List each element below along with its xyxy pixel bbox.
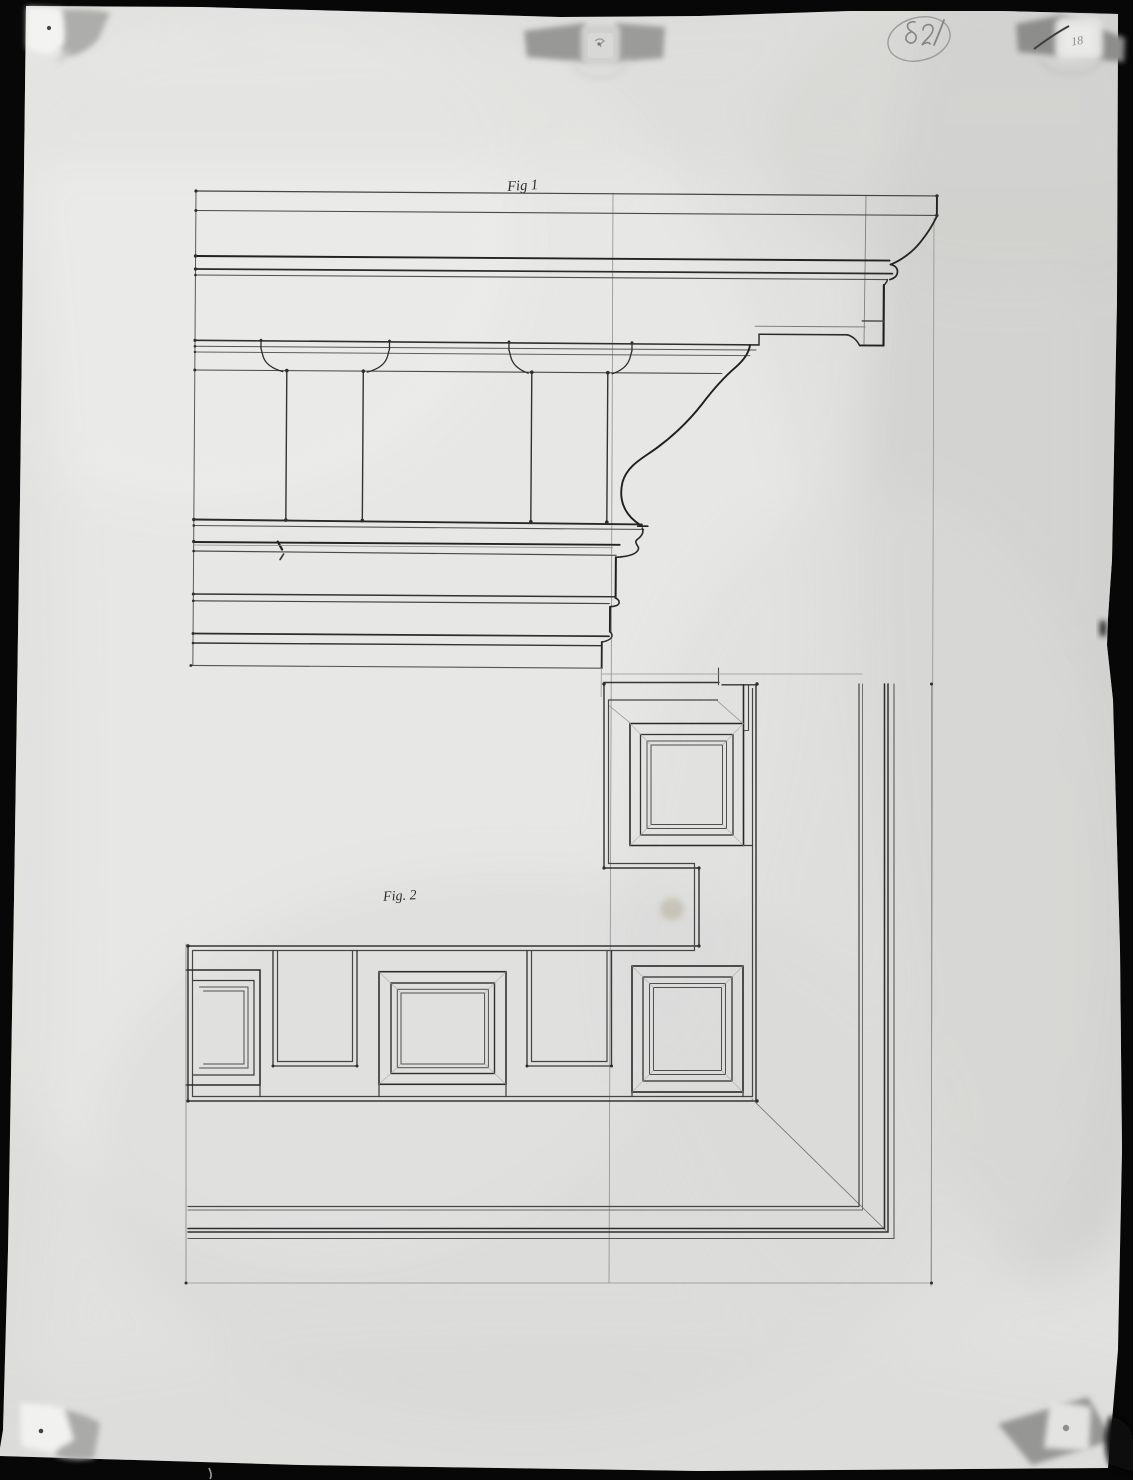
svg-text:Fig. 2: Fig. 2 <box>382 888 417 905</box>
svg-text:Fig 1: Fig 1 <box>506 177 539 195</box>
svg-text:18: 18 <box>1070 33 1084 49</box>
